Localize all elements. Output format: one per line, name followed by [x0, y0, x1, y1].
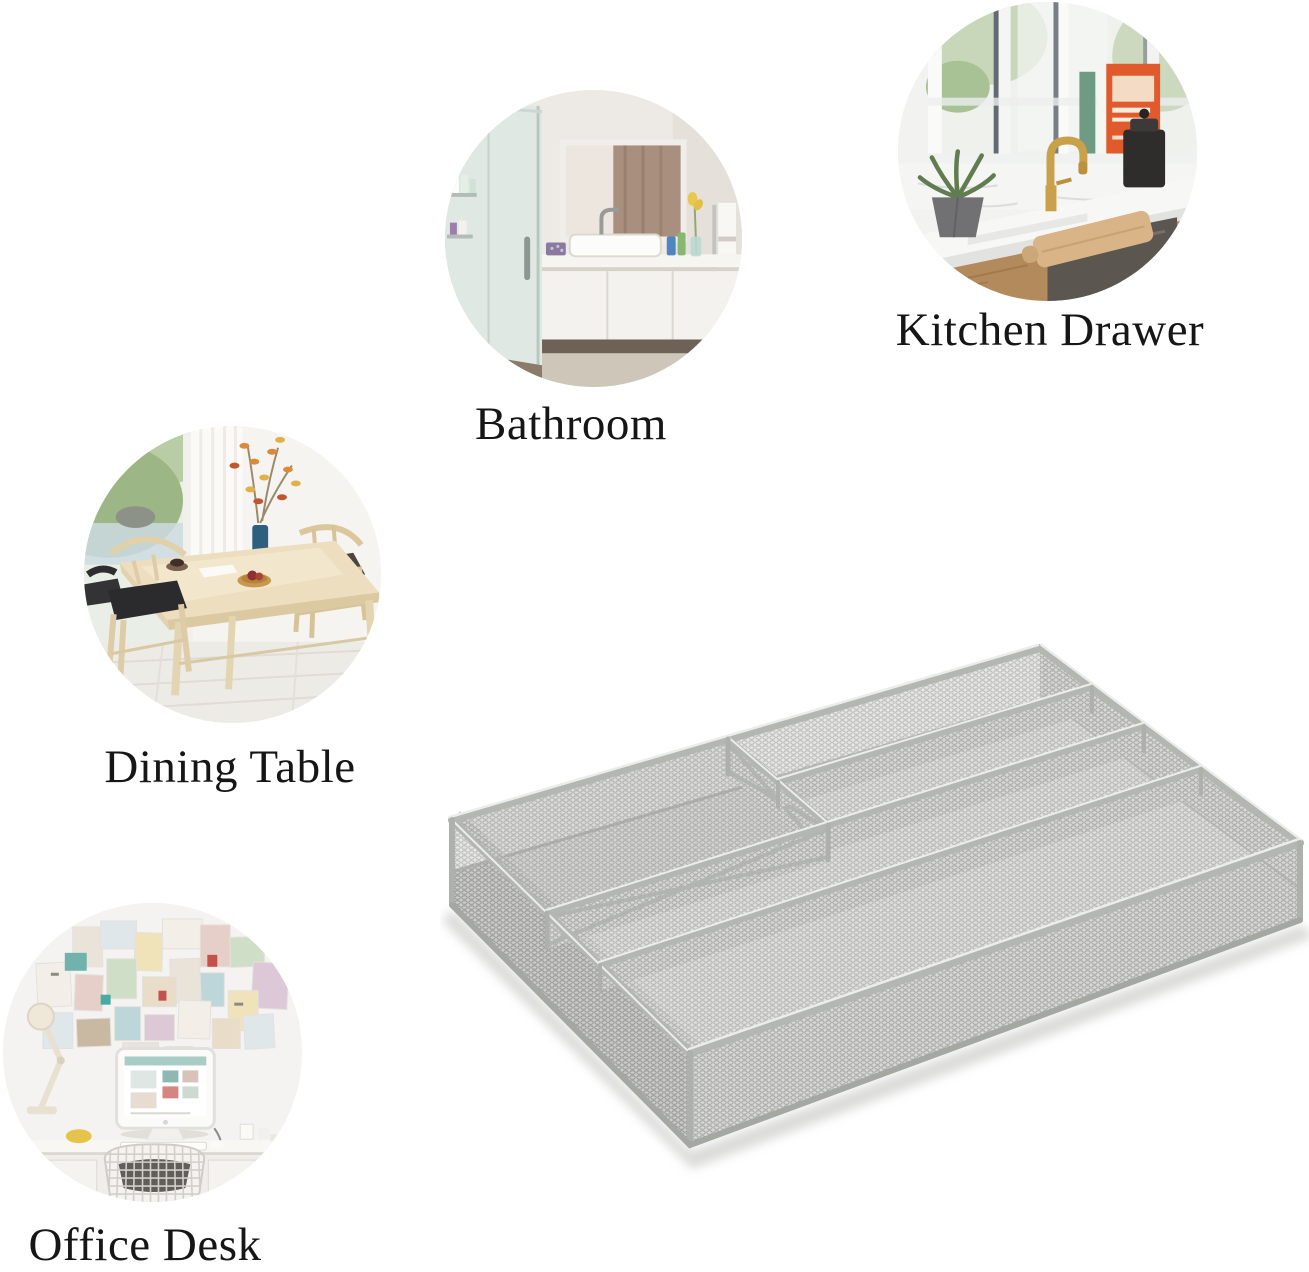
- bathroom-photo-art: [445, 90, 742, 387]
- office-desk-photo: [3, 903, 302, 1202]
- kitchen-photo-art: [898, 2, 1197, 301]
- dining-table-photo: [84, 426, 381, 723]
- office-desk-label: Office Desk: [28, 1221, 261, 1270]
- kitchen-drawer-photo: [898, 2, 1197, 301]
- dining-table-label: Dining Table: [104, 743, 355, 792]
- dining-photo-art: [84, 426, 381, 723]
- cutlery-tray-photo: [440, 635, 1309, 1195]
- product-collage: Bathroom: [0, 0, 1309, 1272]
- cutlery-tray-art: [440, 635, 1309, 1195]
- bathroom-photo: [445, 90, 742, 387]
- bathroom-label: Bathroom: [475, 400, 667, 449]
- office-photo-art: [3, 903, 302, 1202]
- kitchen-drawer-label: Kitchen Drawer: [896, 306, 1204, 355]
